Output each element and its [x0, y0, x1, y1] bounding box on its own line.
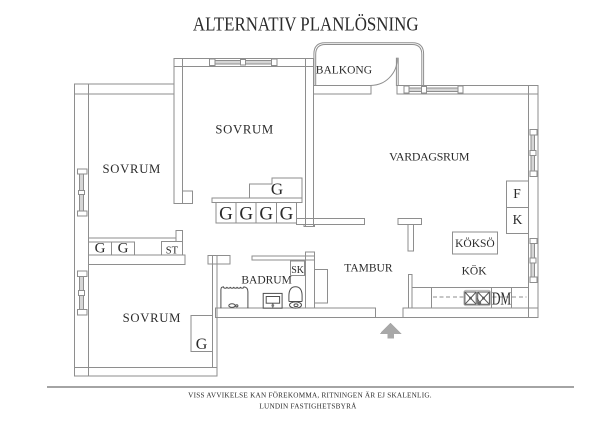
svg-text:KÖKSÖ: KÖKSÖ [455, 236, 495, 250]
svg-text:G: G [95, 241, 106, 257]
svg-text:G: G [280, 204, 294, 225]
svg-text:G: G [118, 241, 129, 257]
svg-text:G: G [259, 204, 273, 225]
svg-text:G: G [196, 336, 208, 353]
svg-text:F: F [513, 186, 521, 201]
svg-text:G: G [271, 180, 283, 199]
svg-text:VISS AVVIKELSE KAN FÖREKOMMA,: VISS AVVIKELSE KAN FÖREKOMMA, RITNINGEN … [188, 391, 432, 400]
svg-text:TAMBUR: TAMBUR [344, 262, 393, 274]
svg-text:ST: ST [166, 246, 179, 257]
svg-text:G: G [219, 204, 233, 225]
svg-text:SOVRUM: SOVRUM [215, 122, 274, 136]
svg-text:BADRUM: BADRUM [241, 274, 291, 286]
svg-text:KÖK: KÖK [462, 264, 488, 278]
svg-text:LUNDIN FASTIGHETSBYRÅ: LUNDIN FASTIGHETSBYRÅ [259, 401, 357, 410]
svg-text:ALTERNATIV PLANLÖSNING: ALTERNATIV PLANLÖSNING [193, 13, 419, 36]
svg-text:VARDAGSRUM: VARDAGSRUM [389, 149, 470, 163]
svg-text:SK: SK [291, 265, 305, 276]
svg-text:SOVRUM: SOVRUM [123, 311, 182, 325]
svg-text:DM: DM [492, 291, 511, 310]
svg-text:SOVRUM: SOVRUM [103, 162, 162, 176]
svg-text:BALKONG: BALKONG [316, 64, 372, 76]
svg-text:K: K [513, 212, 523, 227]
svg-text:G: G [239, 204, 253, 225]
